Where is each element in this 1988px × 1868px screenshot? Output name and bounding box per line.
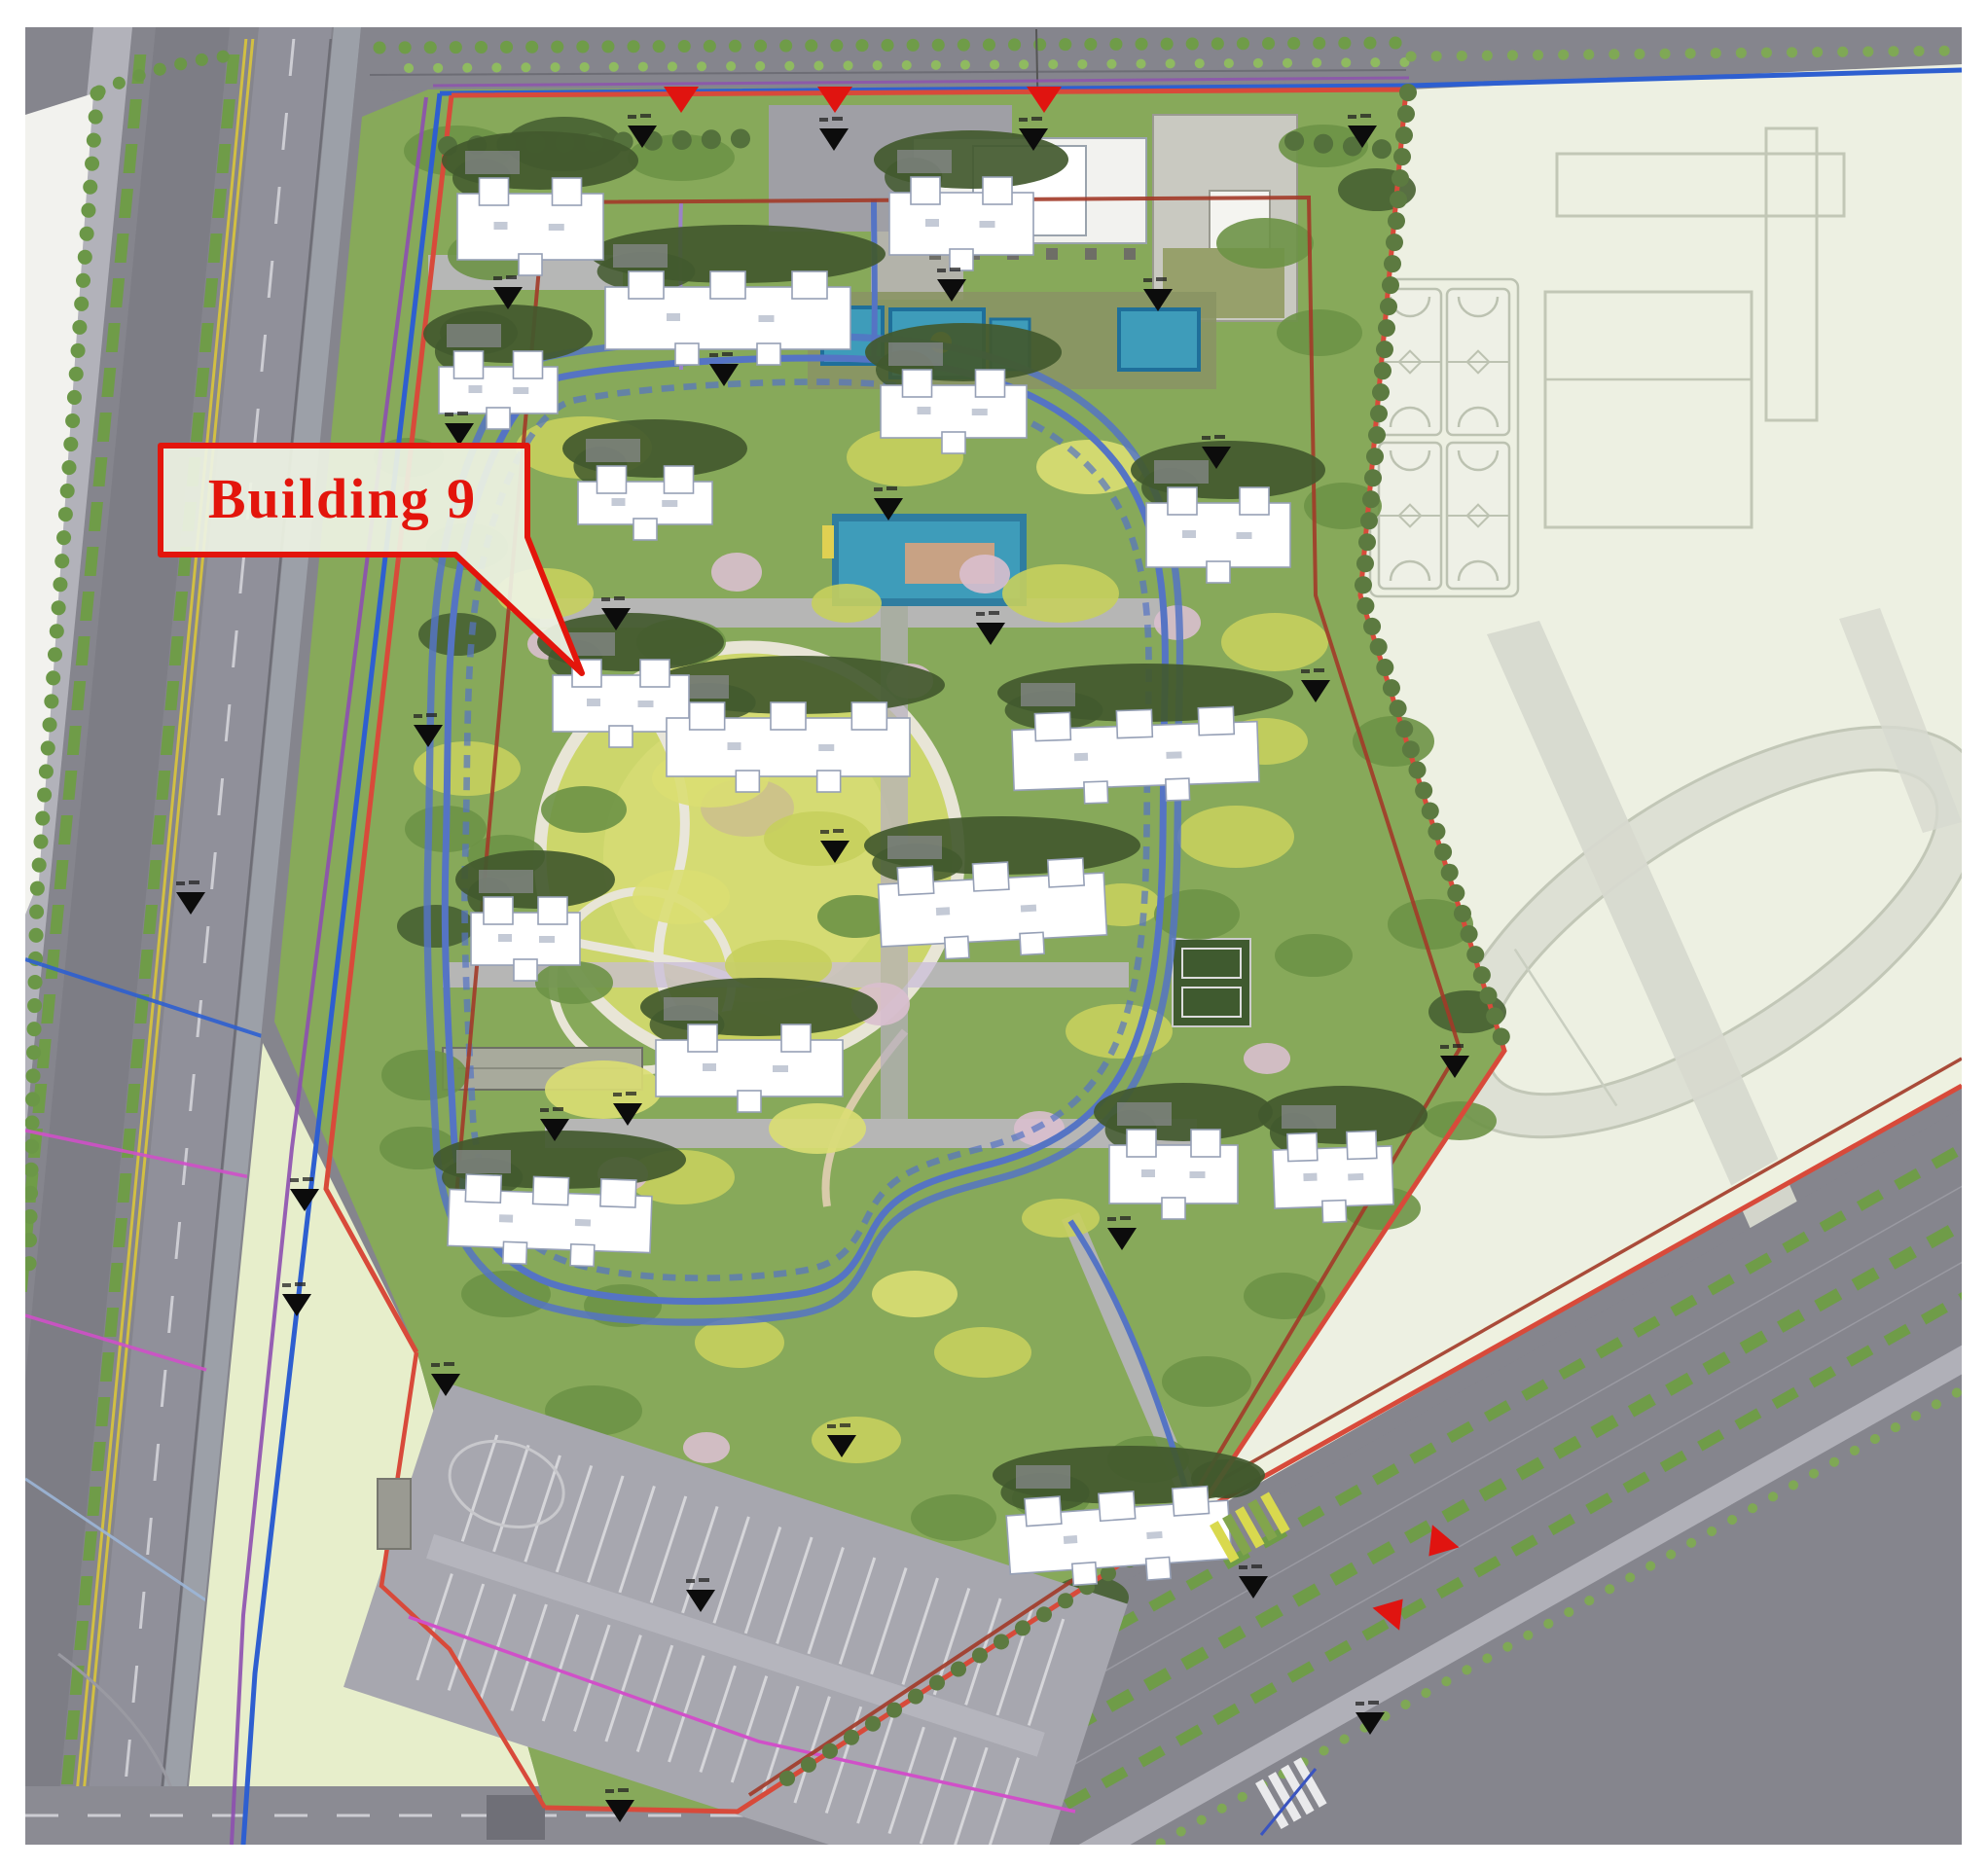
building9-label: Building 9 [208, 467, 477, 530]
parking-apron [1021, 683, 1075, 706]
basketball-court [1379, 443, 1441, 589]
parking-apron [887, 836, 942, 859]
basketball-court [1447, 443, 1509, 589]
tree-blob [1275, 934, 1353, 977]
parking-apron [586, 439, 640, 462]
parking-apron [1117, 1102, 1172, 1126]
tree-blob [1162, 1356, 1251, 1407]
tree-blob [1277, 309, 1362, 356]
tree-blob [1244, 1043, 1290, 1074]
tree-blob [934, 1327, 1031, 1378]
tree-blob [1221, 613, 1328, 671]
tree-blob [769, 1103, 866, 1154]
tree-blob [1353, 716, 1434, 767]
tree-blob [633, 870, 730, 924]
tree-blob [812, 1417, 901, 1463]
parking-apron [888, 342, 943, 366]
tree-blob [1154, 889, 1240, 940]
parking-apron [897, 150, 952, 173]
tree-blob [683, 1432, 730, 1463]
parking-apron [1282, 1105, 1336, 1129]
parking-apron [1016, 1465, 1070, 1489]
tree-blob [1216, 218, 1314, 269]
amenity-court [1173, 939, 1250, 1026]
parking-apron [1154, 460, 1209, 484]
site-plan-canvas: Building 9 [0, 0, 1988, 1868]
tree-blob [1022, 1199, 1100, 1238]
tree-blob [541, 786, 627, 833]
parking-apron [465, 151, 520, 174]
parking-apron [664, 997, 718, 1021]
basketball-court [1447, 289, 1509, 435]
site-plan: Building 9 [0, 0, 1988, 1868]
tree-blob [711, 553, 762, 592]
tree-blob [1002, 564, 1119, 623]
tree-blob [872, 1271, 958, 1317]
tree-blob [535, 961, 613, 1004]
tree-blob [959, 555, 1010, 593]
tree-blob [911, 1494, 996, 1541]
tree-blob [764, 811, 871, 866]
tree-blob [812, 584, 882, 623]
tree-blob [1177, 806, 1294, 868]
parking-apron [613, 244, 668, 268]
parking-apron [479, 870, 533, 893]
parking-apron [447, 324, 501, 347]
parking-apron [456, 1150, 511, 1173]
